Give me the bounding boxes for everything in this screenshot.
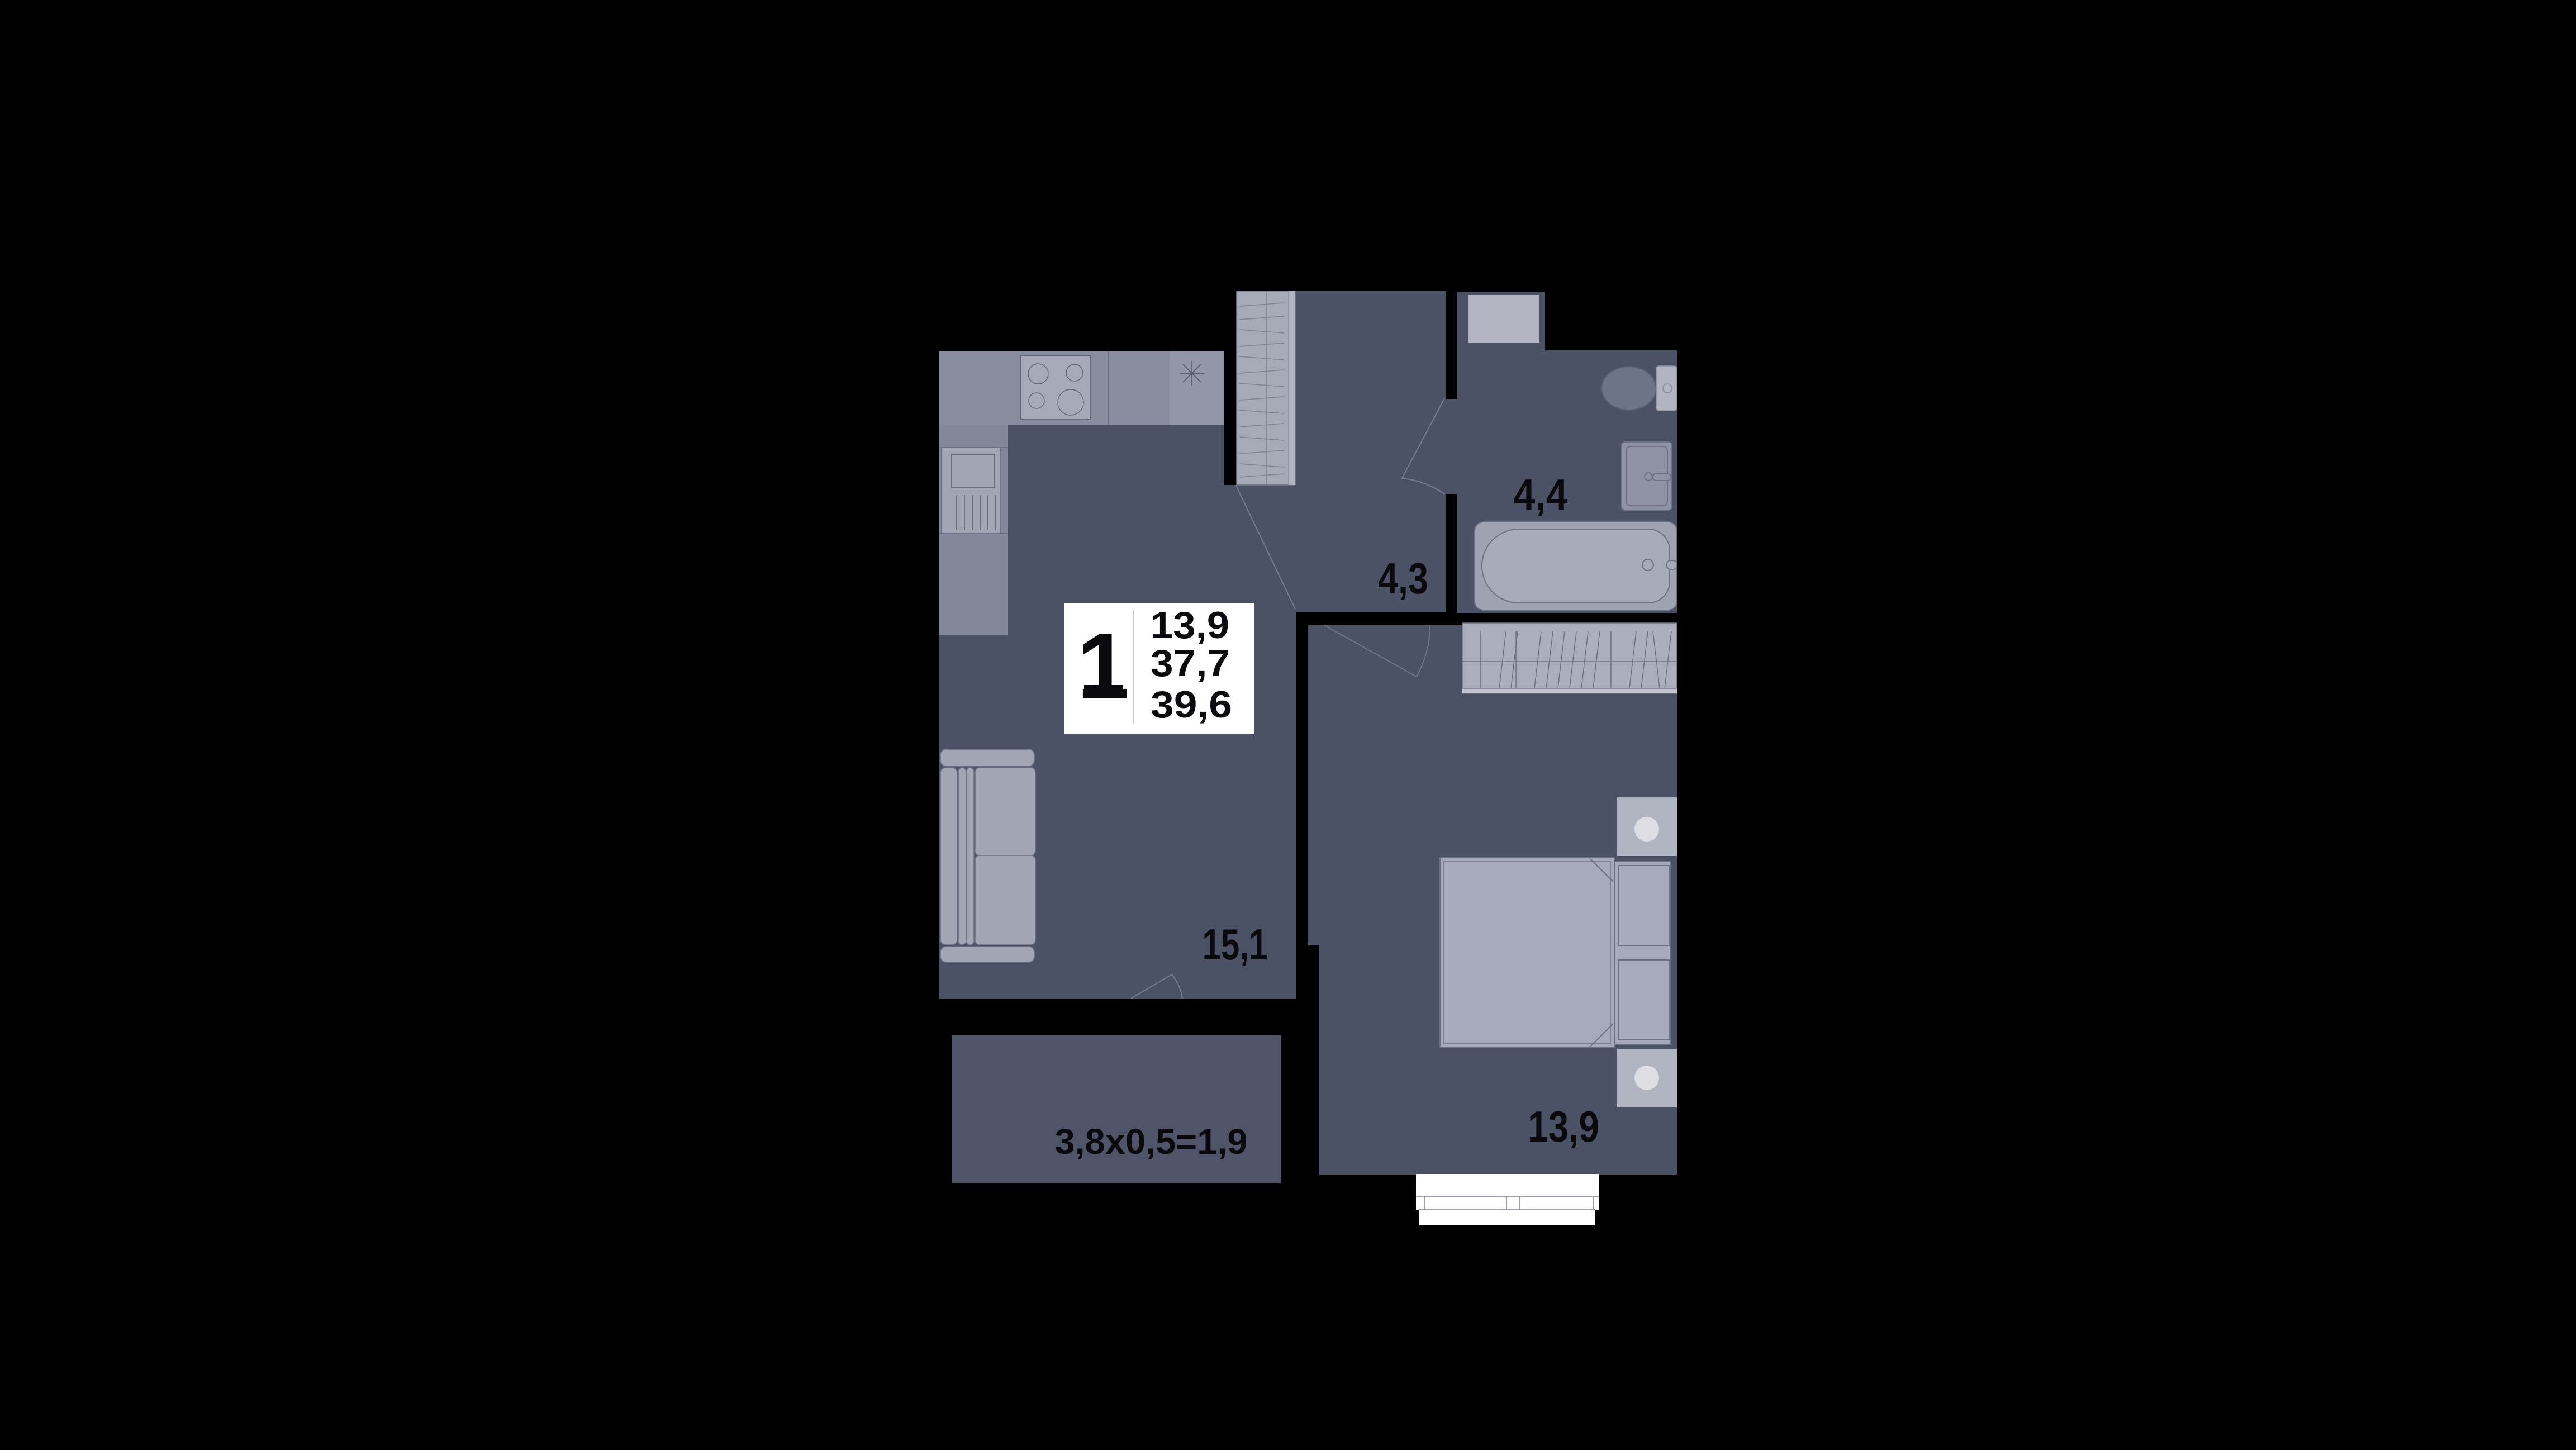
svg-text:13,9: 13,9 (1151, 604, 1229, 646)
svg-text:4,4: 4,4 (1514, 470, 1568, 519)
svg-text:13,9: 13,9 (1528, 1102, 1599, 1151)
svg-text:4,3: 4,3 (1378, 554, 1428, 603)
svg-text:37,7: 37,7 (1151, 642, 1230, 684)
svg-text:39,6: 39,6 (1151, 683, 1232, 726)
svg-text:3,8x0,5=1,9: 3,8x0,5=1,9 (1055, 1121, 1248, 1162)
svg-text:1: 1 (1077, 614, 1129, 719)
svg-text:15,1: 15,1 (1203, 920, 1268, 969)
